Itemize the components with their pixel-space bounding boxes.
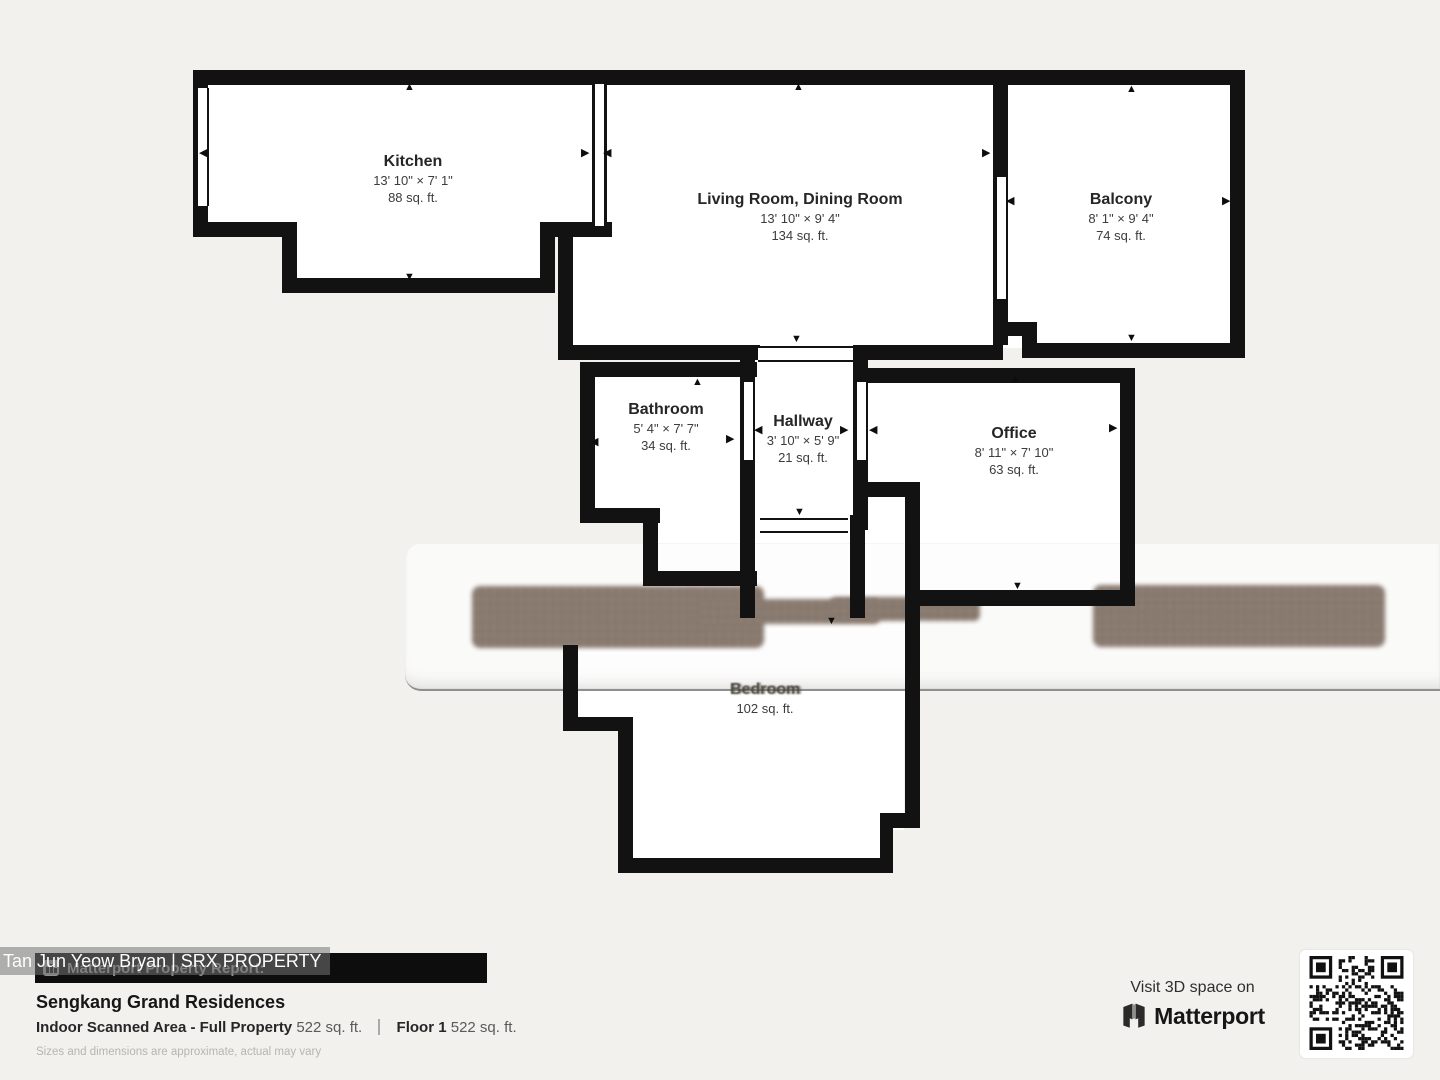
wall <box>853 345 1003 360</box>
wall <box>558 345 760 360</box>
room-area: 134 sq. ft. <box>650 227 950 244</box>
door-direction-icon: ▼ <box>404 272 415 283</box>
room-name: Hallway <box>733 412 873 432</box>
wall <box>1120 368 1135 606</box>
door-direction-icon: ▲ <box>1010 374 1021 385</box>
room-dimensions: 8' 11" × 7' 10" <box>924 444 1104 461</box>
room-area: 21 sq. ft. <box>733 449 873 466</box>
room-name: Bathroom <box>576 400 756 420</box>
room-label-living: Living Room, Dining Room 13' 10" × 9' 4"… <box>650 190 950 244</box>
floor-plan-report: ▲ ▼ ◀ ▶ ◀ ▲ ▼ ▶ ◀ ▲ ▼ ▶ ▲ ◀ ▶ ◀ ▶ ◀ ▼ ▲ … <box>0 0 1440 1080</box>
room-name: Office <box>924 424 1104 444</box>
wall <box>905 482 920 828</box>
door-direction-icon: ▼ <box>791 334 802 345</box>
wall <box>193 70 1245 85</box>
door-direction-icon: ▶ <box>581 148 589 159</box>
wall <box>618 858 893 873</box>
matterport-wordmark: Matterport <box>1154 1003 1265 1030</box>
wall <box>580 362 757 377</box>
wall <box>1022 322 1037 352</box>
door-direction-icon: ◀ <box>603 148 611 159</box>
wall <box>1230 70 1245 358</box>
property-name: Sengkang Grand Residences <box>36 992 285 1013</box>
separator <box>378 1019 380 1035</box>
disclaimer-text: Sizes and dimensions are approximate, ac… <box>36 1046 321 1058</box>
floor-value: 522 sq. ft. <box>451 1019 517 1036</box>
wall <box>853 368 1135 383</box>
agent-watermark: Tan Jun Yeow Bryan | SRX PROPERTY <box>0 947 330 975</box>
room-dimensions: 8' 1" × 9' 4" <box>1021 210 1221 227</box>
room-area: 88 sq. ft. <box>293 189 533 206</box>
qr-code <box>1300 950 1413 1058</box>
wall <box>558 225 573 360</box>
door-direction-icon: ◀ <box>1006 196 1014 207</box>
wall <box>850 515 865 618</box>
door-direction-icon: ▲ <box>793 82 804 93</box>
wall <box>1022 343 1245 358</box>
door-direction-icon: ▶ <box>1109 423 1117 434</box>
door-direction-icon: ▲ <box>404 82 415 93</box>
room-dimensions: 3' 10" × 5' 9" <box>733 432 873 449</box>
matterport-logo-icon <box>1120 1002 1148 1030</box>
door-direction-icon: ▼ <box>794 507 805 518</box>
blurred-watermark-blob <box>1093 585 1385 647</box>
door-direction-icon: ▶ <box>982 148 990 159</box>
door-direction-icon: ▼ <box>826 616 837 627</box>
visit-3d-text: Visit 3D space on <box>1095 978 1290 998</box>
room-area: 102 sq. ft. <box>665 700 865 717</box>
visit-3d-cta: Visit 3D space on Matterport <box>1095 978 1290 1030</box>
room-label-kitchen: Kitchen 13' 10" × 7' 1" 88 sq. ft. <box>293 152 533 206</box>
room-area: 74 sq. ft. <box>1021 227 1221 244</box>
room-label-office: Office 8' 11" × 7' 10" 63 sq. ft. <box>924 424 1104 478</box>
door-opening <box>758 346 853 362</box>
door-direction-icon: ◀ <box>199 148 207 159</box>
door-direction-icon: ▲ <box>692 377 703 388</box>
floor-label: Floor 1 <box>397 1019 447 1036</box>
door-direction-icon: ▲ <box>1126 84 1137 95</box>
room-label-bedroom: Bedroom 102 sq. ft. <box>665 680 865 717</box>
room-area: 34 sq. ft. <box>576 437 756 454</box>
wall <box>905 590 1135 606</box>
door-direction-icon: ▶ <box>1222 196 1230 207</box>
room-label-hallway: Hallway 3' 10" × 5' 9" 21 sq. ft. <box>733 412 873 466</box>
bedroom-floor <box>630 700 882 862</box>
room-dimensions: 13' 10" × 7' 1" <box>293 172 533 189</box>
room-area: 63 sq. ft. <box>924 461 1104 478</box>
wall <box>880 813 918 828</box>
door-opening <box>760 518 848 533</box>
room-dimensions: 13' 10" × 9' 4" <box>650 210 950 227</box>
door-direction-icon: ▼ <box>1012 581 1023 592</box>
wall <box>282 278 555 293</box>
scanned-area-value: 522 sq. ft. <box>296 1019 362 1036</box>
room-name: Kitchen <box>293 152 533 172</box>
scanned-area-label: Indoor Scanned Area - Full Property <box>36 1019 292 1036</box>
wall <box>740 515 755 618</box>
wall <box>618 717 633 873</box>
door-direction-icon: ▼ <box>1126 333 1137 344</box>
room-label-balcony: Balcony 8' 1" × 9' 4" 74 sq. ft. <box>1021 190 1221 244</box>
scanned-area-line: Indoor Scanned Area - Full Property 522 … <box>36 1019 517 1036</box>
room-label-bathroom: Bathroom 5' 4" × 7' 7" 34 sq. ft. <box>576 400 756 454</box>
room-name: Balcony <box>1021 190 1221 210</box>
room-name: Living Room, Dining Room <box>650 190 950 210</box>
room-name: Bedroom <box>665 680 865 700</box>
room-dimensions: 5' 4" × 7' 7" <box>576 420 756 437</box>
